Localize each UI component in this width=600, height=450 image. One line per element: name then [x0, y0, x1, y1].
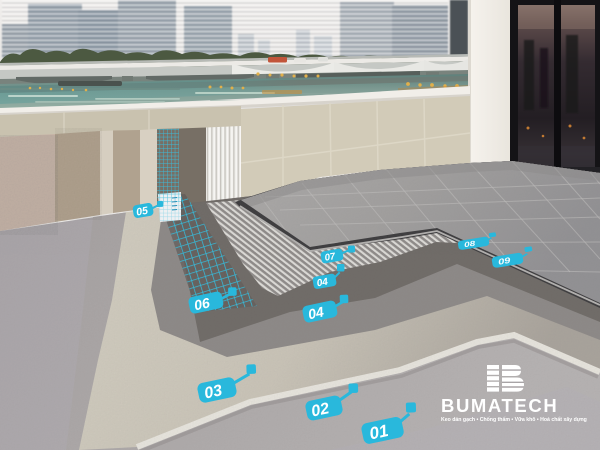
svg-text:01: 01 [368, 421, 390, 444]
svg-text:BUMATECH: BUMATECH [441, 395, 558, 416]
svg-text:03: 03 [203, 382, 224, 402]
svg-text:02: 02 [310, 400, 331, 420]
svg-text:09: 09 [498, 256, 512, 267]
svg-text:Keo dán gạch • Chống thấm • Vữ: Keo dán gạch • Chống thấm • Vữa khô • Ho… [441, 416, 587, 423]
svg-text:05: 05 [135, 205, 149, 219]
svg-text:08: 08 [464, 239, 476, 249]
